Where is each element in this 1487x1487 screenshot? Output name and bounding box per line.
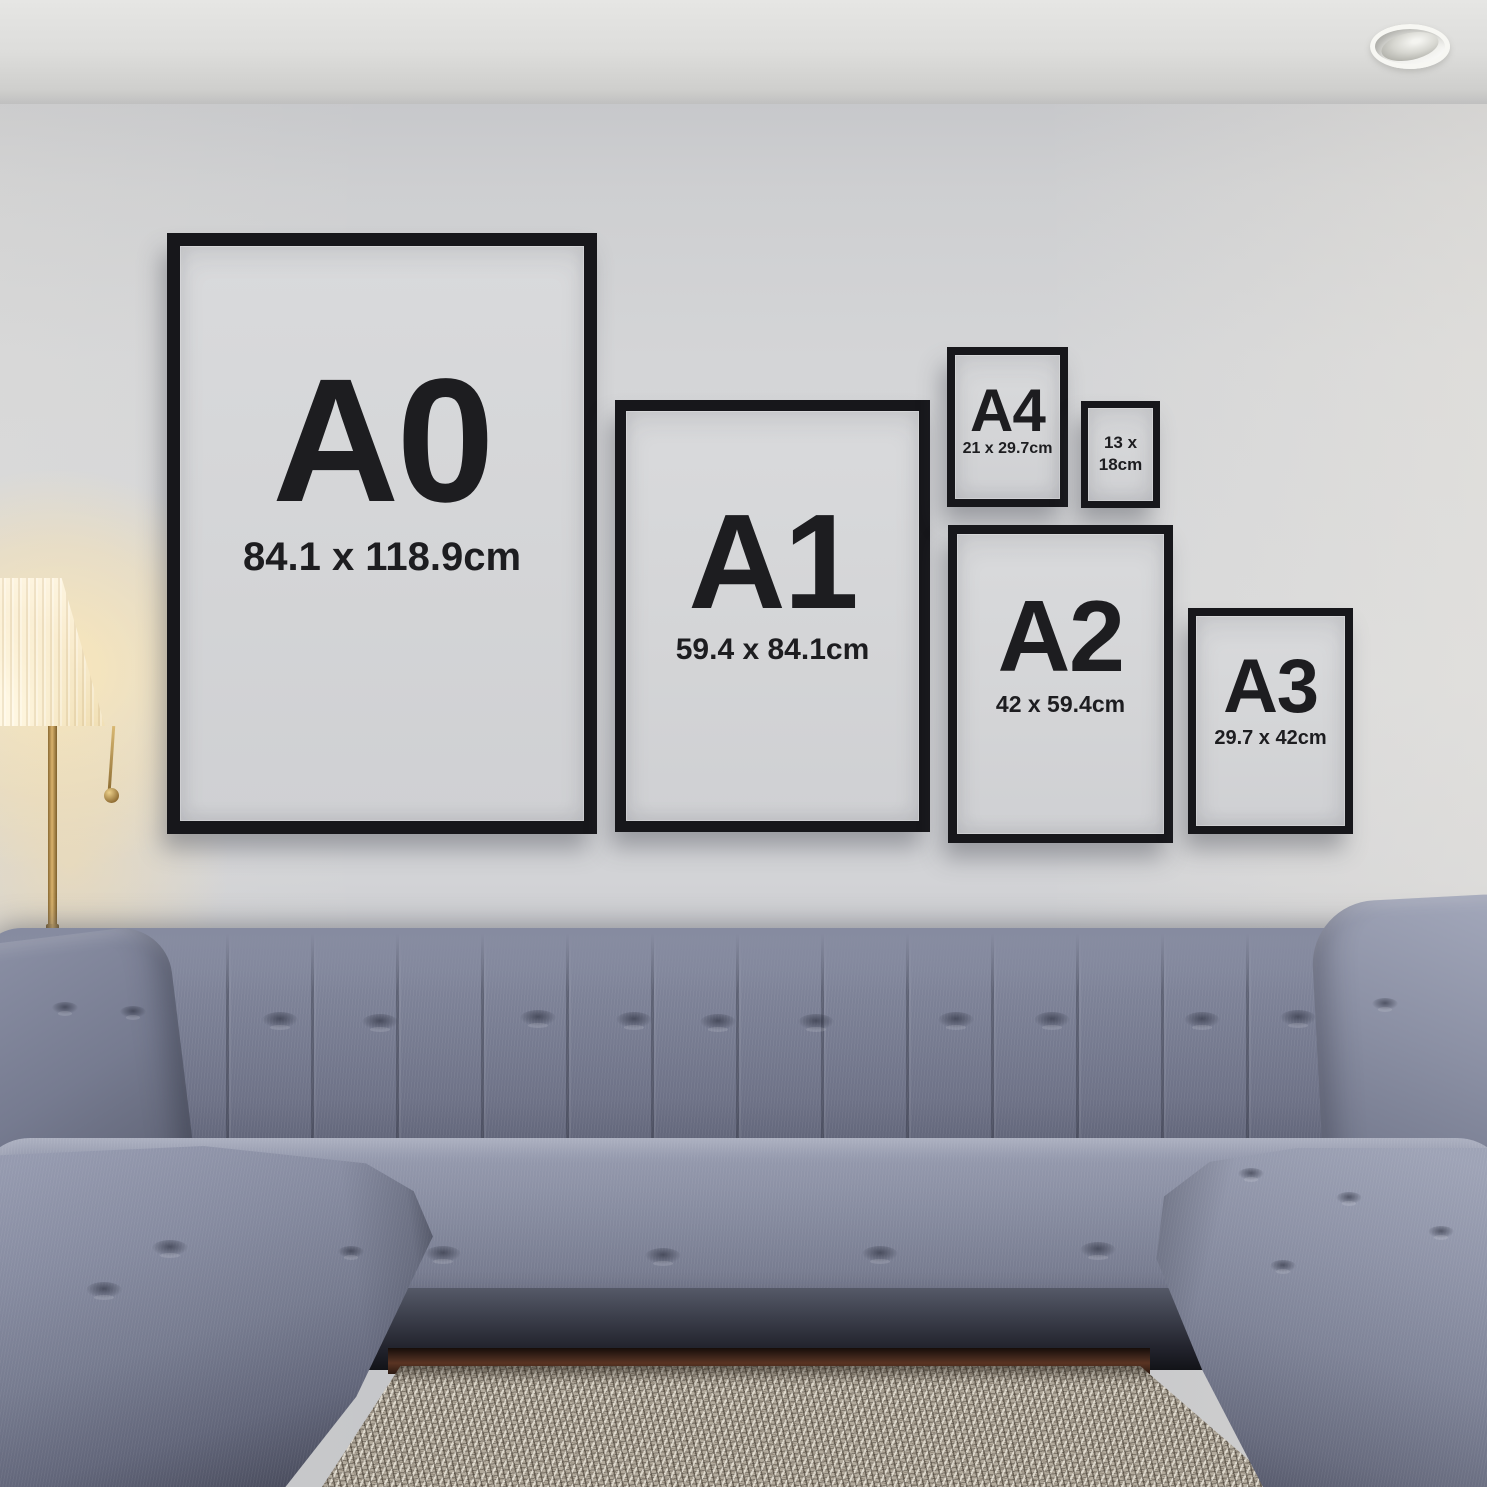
frame-13x18-dimensions-line1: 13 x [1104, 432, 1137, 453]
tuft [1280, 1010, 1316, 1026]
frame-a2-dimensions: 42 x 59.4cm [996, 691, 1125, 718]
tuft [862, 1246, 898, 1262]
tuft [1184, 1012, 1220, 1028]
tuft [52, 1002, 78, 1014]
frame-a1: A1 59.4 x 84.1cm [615, 400, 930, 832]
frame-a3: A3 29.7 x 42cm [1188, 608, 1353, 834]
tuft [1080, 1242, 1116, 1258]
tuft [700, 1014, 736, 1030]
tuft [798, 1014, 834, 1030]
ceiling [0, 0, 1487, 104]
tuft [262, 1012, 298, 1028]
frame-a4-size-label: A4 [970, 386, 1045, 435]
frame-a4-dimensions: 21 x 29.7cm [963, 440, 1053, 458]
lamp-pull-ball [104, 788, 119, 803]
frame-a0: A0 84.1 x 118.9cm [167, 233, 597, 834]
frame-a3-dimensions: 29.7 x 42cm [1214, 727, 1326, 750]
frame-a2-size-label: A2 [997, 596, 1123, 679]
recessed-ceiling-light [1370, 24, 1450, 69]
ceiling-light-cavity [1379, 27, 1441, 65]
tuft [1336, 1192, 1362, 1204]
tuft [1270, 1260, 1296, 1272]
tuft [152, 1240, 188, 1256]
tuft [120, 1006, 146, 1018]
tuft [1034, 1012, 1070, 1028]
tuft [616, 1012, 652, 1028]
tuft [520, 1010, 556, 1026]
frame-a0-dimensions: 84.1 x 118.9cm [243, 535, 521, 580]
frame-a3-size-label: A3 [1223, 656, 1318, 718]
tuft [425, 1246, 461, 1262]
shag-rug [322, 1366, 1280, 1487]
tuft [1428, 1226, 1454, 1238]
frame-a1-dimensions: 59.4 x 84.1cm [676, 633, 870, 667]
tuft [338, 1246, 364, 1258]
tuft [362, 1014, 398, 1030]
tuft [938, 1012, 974, 1028]
tuft [1372, 998, 1398, 1010]
living-room-poster-size-guide: A0 84.1 x 118.9cm A1 59.4 x 84.1cm A4 21… [0, 0, 1487, 1487]
frame-a2: A2 42 x 59.4cm [948, 525, 1173, 843]
frame-a1-size-label: A1 [688, 507, 857, 618]
frame-a0-size-label: A0 [272, 369, 492, 513]
frame-a4: A4 21 x 29.7cm [947, 347, 1068, 507]
frame-13x18: 13 x 18cm [1081, 401, 1160, 508]
tuft [86, 1282, 122, 1298]
tuft [1238, 1168, 1264, 1180]
frame-13x18-dimensions-line2: 18cm [1099, 454, 1142, 475]
tuft [645, 1248, 681, 1264]
